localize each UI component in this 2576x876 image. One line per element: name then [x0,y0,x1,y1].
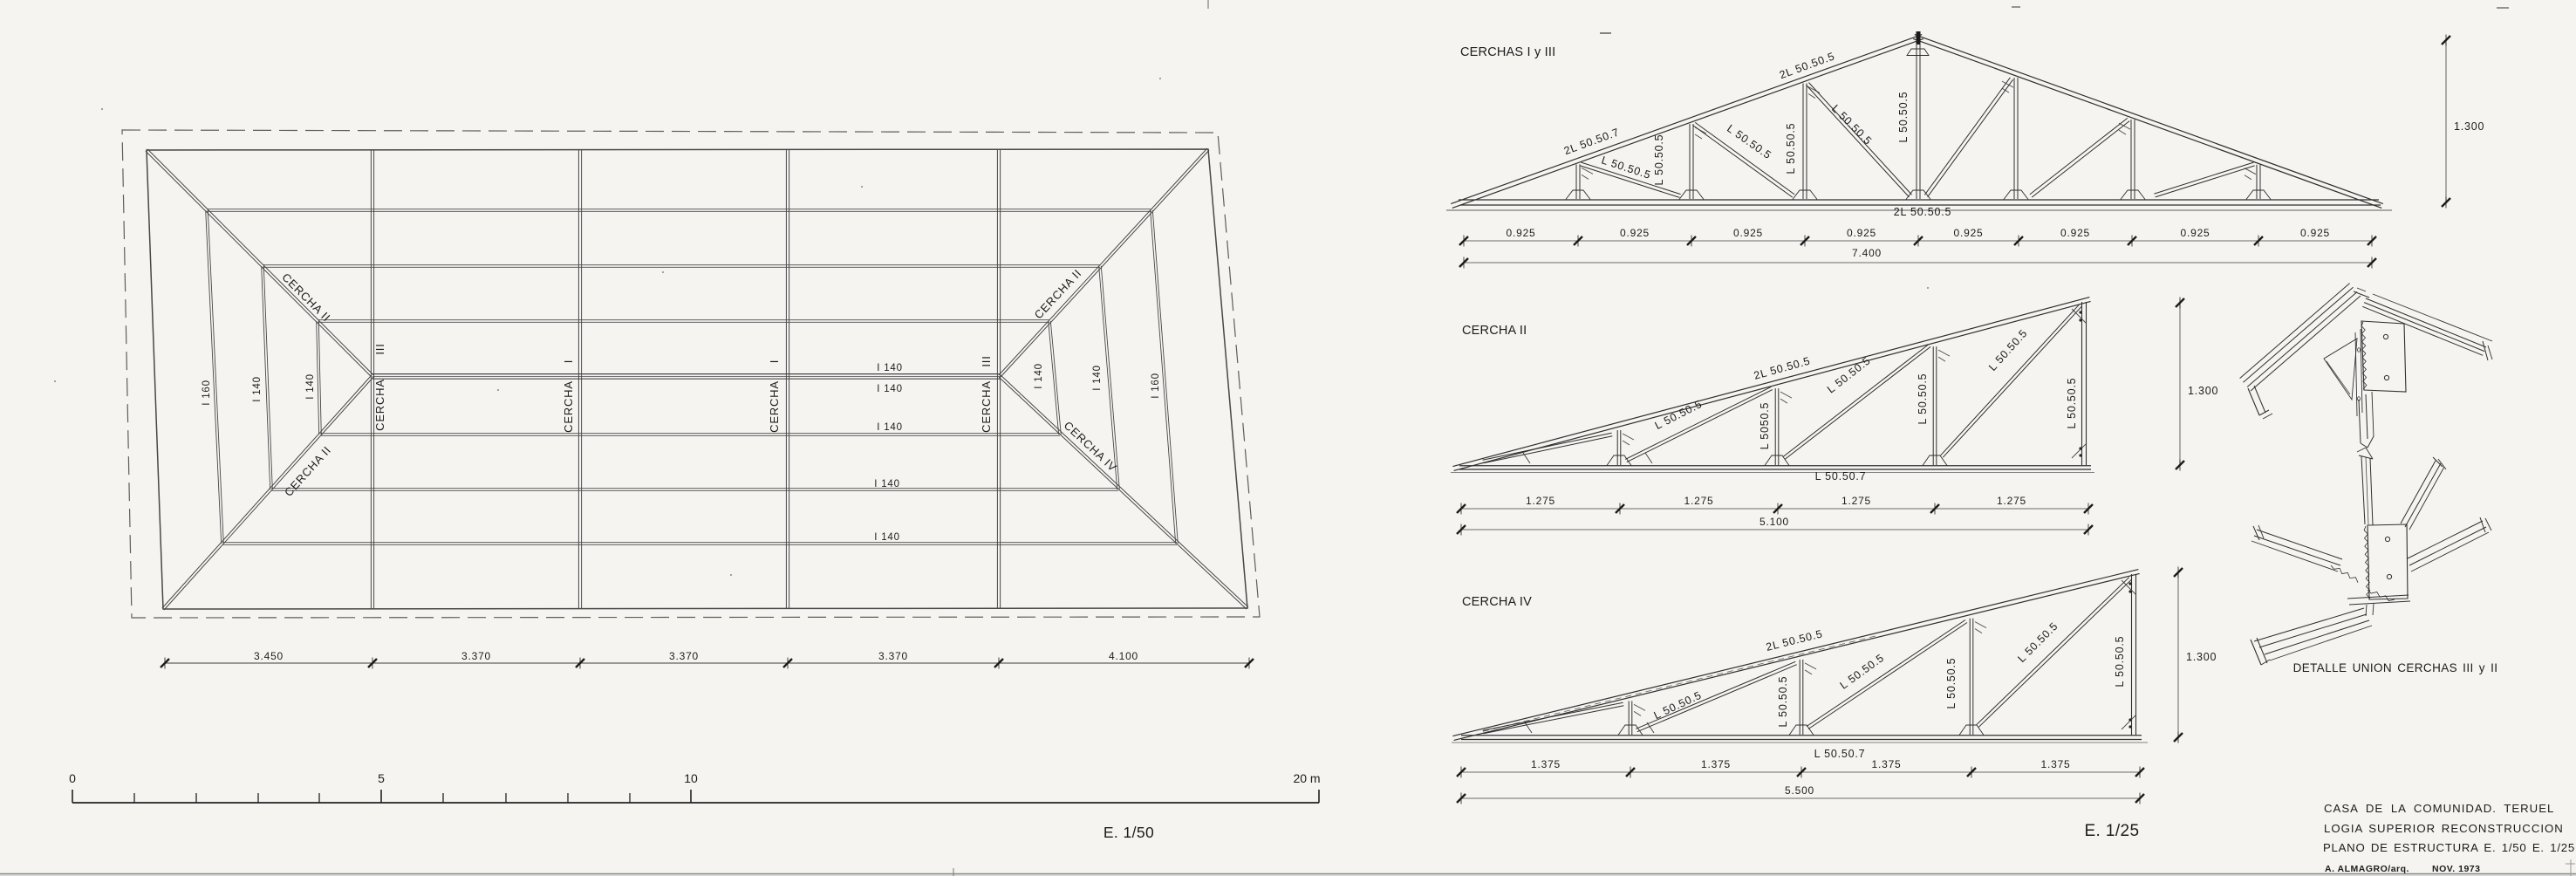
svg-text:CERCHA: CERCHA [768,380,781,433]
svg-text:1.375: 1.375 [1701,758,1731,770]
svg-text:CERCHA IV: CERCHA IV [1462,595,1532,609]
svg-text:0.925: 0.925 [1733,227,1763,239]
svg-text:I 160: I 160 [202,380,212,406]
svg-text:0: 0 [69,771,76,785]
svg-text:0.925: 0.925 [2300,227,2330,239]
svg-text:CERCHAS I y III: CERCHAS I y III [1460,45,1555,59]
svg-text:1.300: 1.300 [2454,120,2484,133]
svg-text:LOGIA SUPERIOR RECONSTRUCCI: LOGIA SUPERIOR RECONSTRUCCION [2324,822,2564,835]
svg-text:A. ALMAGRO/arq.: A. ALMAGRO/arq. [2325,864,2409,874]
svg-text:20 m: 20 m [1293,771,1320,785]
svg-text:1.275: 1.275 [1684,495,1713,507]
svg-text:I 140: I 140 [1092,365,1103,391]
svg-text:1.375: 1.375 [1531,758,1561,770]
svg-text:I 140: I 140 [877,384,903,394]
svg-text:L 50.50.5: L 50.50.5 [1785,123,1797,175]
svg-text:L 5050.5: L 5050.5 [1759,402,1771,450]
svg-text:5.100: 5.100 [1759,516,1789,528]
svg-text:I 140: I 140 [1034,363,1044,389]
svg-text:L 50.50.5: L 50.50.5 [1945,658,1958,709]
svg-text:0.925: 0.925 [1953,227,1983,239]
svg-text:L 50.50.5: L 50.50.5 [1653,134,1665,186]
svg-text:L 50.50.5: L 50.50.5 [1917,373,1929,425]
svg-text:I 140: I 140 [874,532,900,543]
svg-text:I 140: I 140 [252,376,263,402]
svg-text:L 50.50.5: L 50.50.5 [2114,636,2126,688]
svg-text:CERCHA: CERCHA [562,380,575,433]
svg-text:CASA DE LA COMUNIDAD. TERU: CASA DE LA COMUNIDAD. TERUEL [2324,802,2554,815]
svg-text:5.500: 5.500 [1785,784,1814,797]
svg-text:1.275: 1.275 [1841,495,1871,507]
svg-text:NOV. 1973: NOV. 1973 [2432,864,2480,874]
svg-text:III: III [980,355,993,366]
svg-text:E. 1/25: E. 1/25 [2084,822,2139,840]
svg-text:4.100: 4.100 [1109,650,1138,662]
svg-text:L 50.50.7: L 50.50.7 [1814,748,1866,760]
svg-text:3.370: 3.370 [461,650,491,662]
svg-text:PLANO DE ESTRUCTURA E. 1/: PLANO DE ESTRUCTURA E. 1/50 E. 1/25 [2323,841,2575,854]
svg-text:1.375: 1.375 [1871,758,1901,770]
svg-text:3.450: 3.450 [254,650,284,662]
svg-text:7.400: 7.400 [1852,247,1882,259]
svg-text:5: 5 [378,771,385,785]
svg-text:0.925: 0.925 [1506,227,1535,239]
svg-text:L 50.50.5: L 50.50.5 [1897,92,1910,143]
svg-text:1.275: 1.275 [1526,495,1555,507]
svg-text:L 50.50.5: L 50.50.5 [1777,676,1789,728]
svg-text:0.925: 0.925 [2060,227,2090,239]
svg-text:CERCHA: CERCHA [373,379,386,431]
svg-text:0.925: 0.925 [2180,227,2210,239]
svg-text:I 140: I 140 [874,479,900,489]
svg-text:1.300: 1.300 [2186,651,2217,663]
svg-text:III: III [373,343,386,354]
svg-text:I 140: I 140 [877,363,903,373]
svg-text:3.370: 3.370 [669,650,699,662]
svg-text:I: I [768,359,781,363]
svg-text:3.370: 3.370 [878,650,908,662]
svg-text:1.300: 1.300 [2188,385,2218,397]
svg-text:I 160: I 160 [1151,373,1161,399]
svg-text:I 140: I 140 [305,373,316,400]
svg-text:10: 10 [684,771,698,785]
svg-text:CERCHA: CERCHA [980,380,993,433]
svg-text:DETALLE UNION CERCHAS I: DETALLE UNION CERCHAS III y II [2293,661,2498,674]
svg-text:0.925: 0.925 [1620,227,1650,239]
svg-text:2L 50.50.5: 2L 50.50.5 [1894,206,1952,218]
svg-text:E. 1/50: E. 1/50 [1104,824,1154,841]
svg-text:1.275: 1.275 [1997,495,2026,507]
svg-text:0.925: 0.925 [1847,227,1876,239]
svg-text:I 140: I 140 [877,422,903,433]
svg-text:1.375: 1.375 [2040,758,2070,770]
svg-text:L 50.50.5: L 50.50.5 [2066,378,2078,429]
svg-text:I: I [562,359,575,363]
svg-text:L 50.50.7: L 50.50.7 [1815,470,1867,482]
svg-text:CERCHA II: CERCHA II [1462,324,1527,338]
